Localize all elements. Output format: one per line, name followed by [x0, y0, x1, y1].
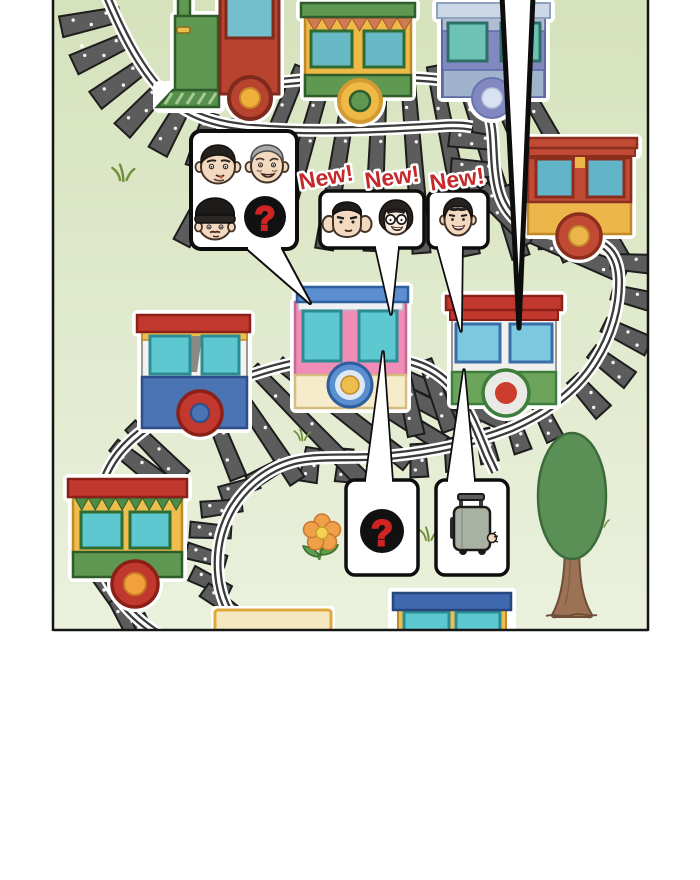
svg-text:?: ? — [371, 513, 393, 554]
svg-text:?: ? — [255, 200, 276, 238]
